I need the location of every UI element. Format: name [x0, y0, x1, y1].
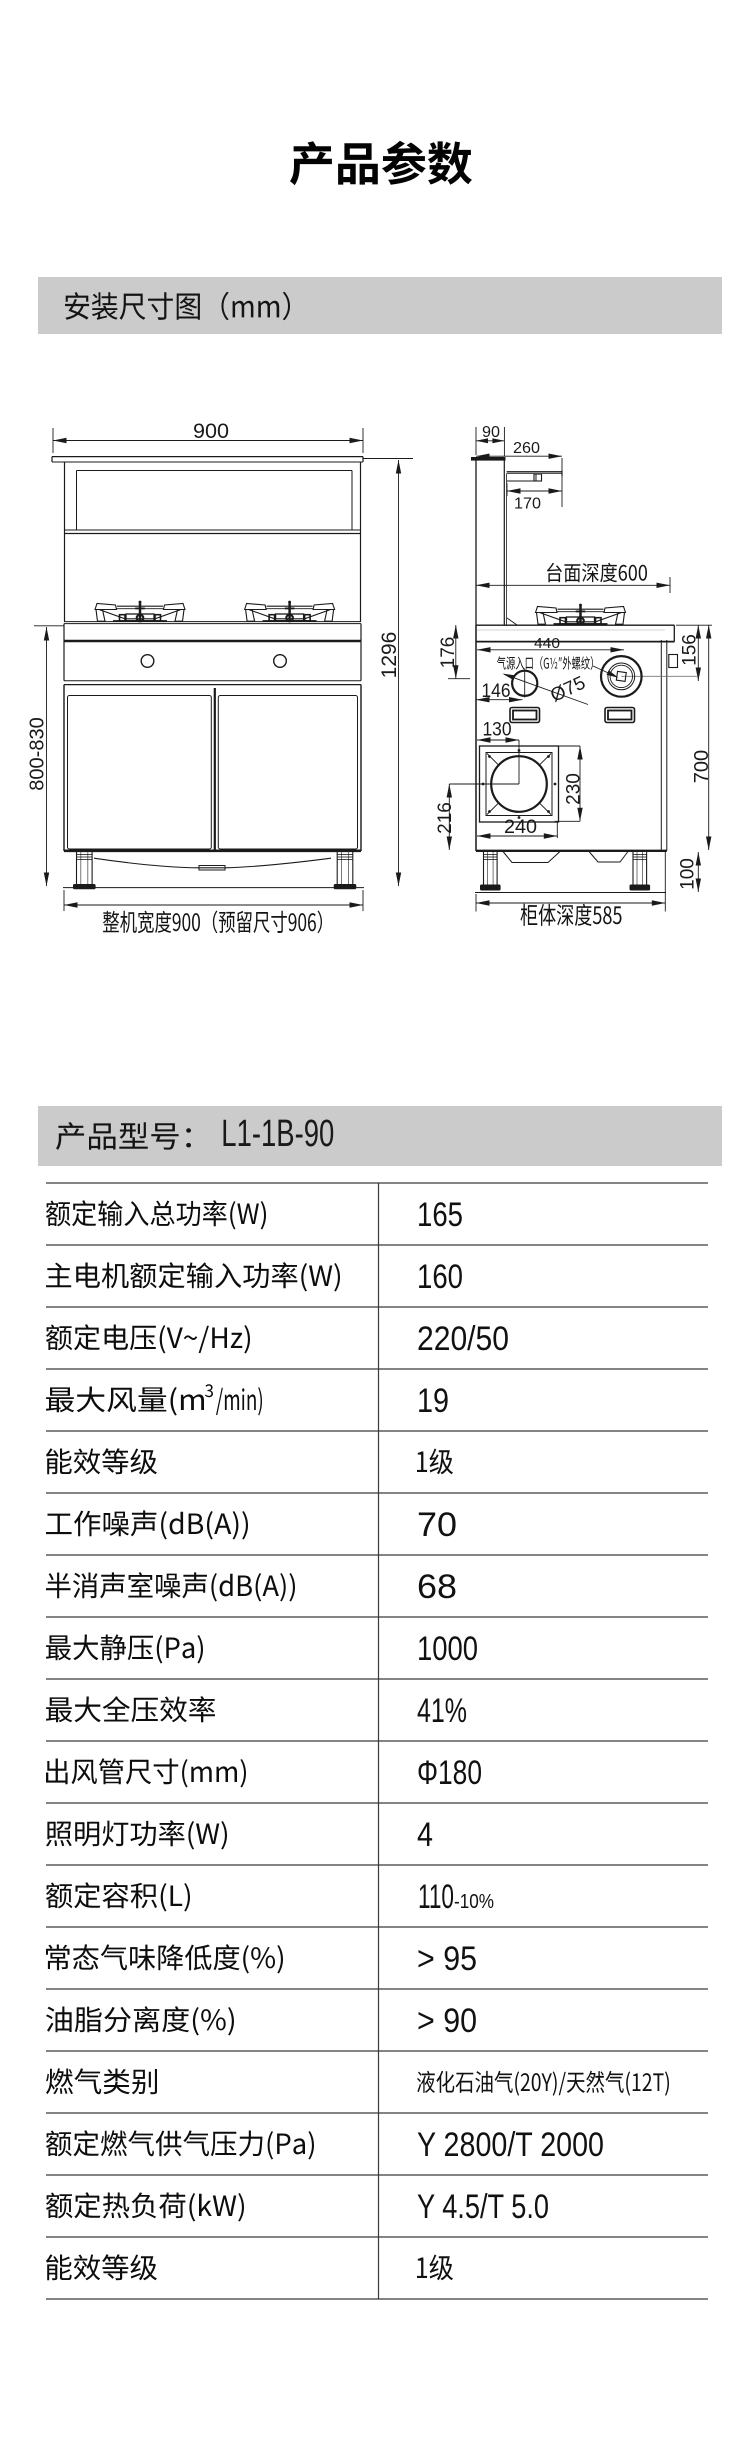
svg-text:70: 70	[417, 1506, 457, 1544]
svg-text:68: 68	[417, 1568, 457, 1606]
svg-text:90: 90	[482, 424, 500, 441]
svg-text:216: 216	[435, 802, 456, 834]
svg-text:41%: 41%	[417, 1692, 467, 1730]
svg-text:100: 100	[677, 858, 698, 890]
svg-text:Y 4.5/T 5.0: Y 4.5/T 5.0	[417, 2188, 549, 2226]
svg-text:260: 260	[513, 440, 540, 457]
svg-text:19: 19	[417, 1382, 449, 1420]
svg-text:440: 440	[534, 635, 560, 652]
svg-text:> 90: > 90	[417, 2002, 477, 2040]
svg-text:1296: 1296	[378, 632, 401, 679]
svg-text:170: 170	[514, 496, 541, 513]
svg-text:220/50: 220/50	[417, 1320, 509, 1358]
svg-text:1000: 1000	[417, 1630, 478, 1668]
svg-text:110: 110	[418, 1878, 454, 1916]
svg-text:L1-1B-90: L1-1B-90	[221, 1113, 334, 1155]
svg-text:4: 4	[417, 1816, 433, 1854]
svg-text:160: 160	[417, 1258, 463, 1296]
svg-text:156: 156	[680, 634, 701, 666]
svg-text:176: 176	[438, 637, 459, 669]
svg-text:> 95: > 95	[417, 1940, 477, 1978]
svg-text:Φ180: Φ180	[417, 1754, 482, 1792]
svg-text:-10%: -10%	[454, 1891, 494, 1913]
svg-text:146: 146	[482, 681, 511, 702]
svg-text:800-830: 800-830	[27, 717, 49, 790]
svg-text:165: 165	[417, 1196, 463, 1234]
svg-text:230: 230	[563, 773, 584, 805]
svg-text:Y 2800/T 2000: Y 2800/T 2000	[417, 2126, 604, 2164]
svg-text:900: 900	[193, 420, 229, 443]
svg-text:130: 130	[483, 720, 512, 741]
svg-text:700: 700	[691, 750, 713, 783]
svg-text:240: 240	[504, 817, 537, 838]
